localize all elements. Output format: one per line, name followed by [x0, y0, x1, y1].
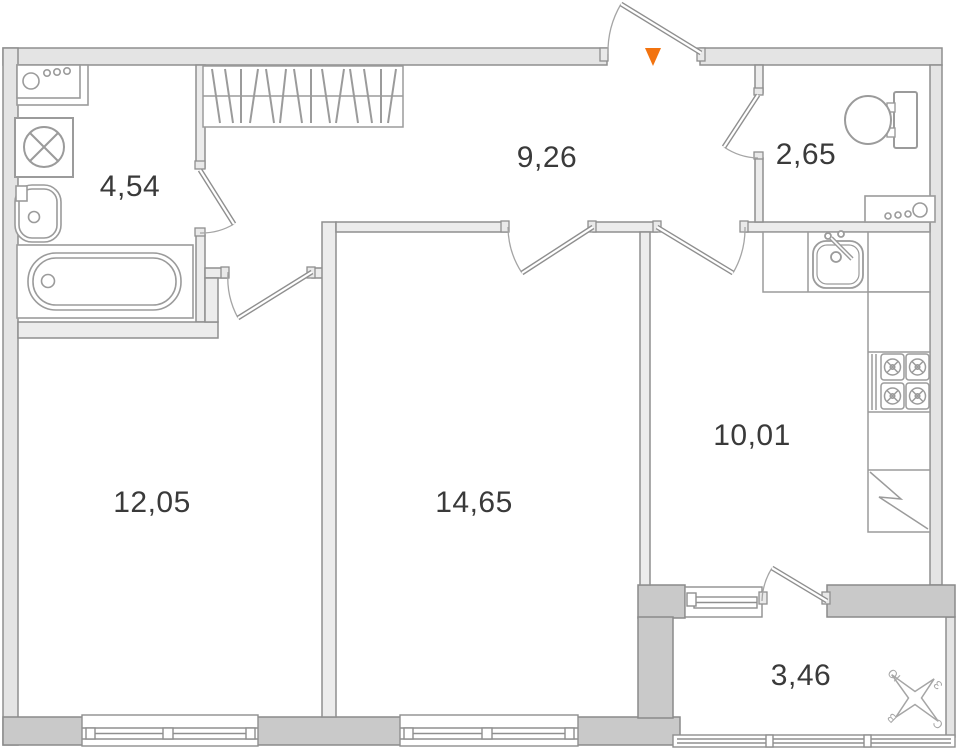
wardrobe-icon — [203, 66, 403, 127]
wall-segment — [205, 278, 218, 322]
door-jamb — [754, 88, 763, 95]
window-icon — [400, 715, 578, 746]
wall-segment — [593, 222, 657, 232]
wall-segment — [322, 222, 336, 717]
door-jamb — [195, 228, 205, 236]
wall-segment — [700, 48, 942, 65]
wall-segment — [638, 617, 673, 718]
bathroom-door-icon — [200, 170, 234, 233]
wall-segment — [196, 235, 205, 322]
toilet-icon — [845, 92, 917, 148]
washer-counter-icon — [17, 65, 88, 105]
wall-segment — [336, 222, 508, 232]
room-area-label-toilet: 2,65 — [776, 138, 836, 172]
room-area-label-hallway: 9,26 — [517, 141, 577, 175]
window-icon — [685, 587, 762, 617]
balcony-door-icon — [762, 568, 827, 601]
floor-plan-drawing: Ю З В С — [0, 0, 958, 748]
door-jamb — [195, 161, 205, 169]
wall-segment — [745, 222, 930, 232]
entrance-arrow-icon — [645, 48, 661, 66]
bedroom-door-icon — [228, 272, 312, 318]
kitchen-door-icon — [657, 227, 745, 273]
compass-north-label: С — [930, 716, 946, 732]
entrance-door-icon — [608, 4, 701, 54]
room-area-label-kitchen: 10,01 — [713, 419, 791, 453]
wall-segment — [3, 48, 607, 65]
room-area-label-living-room: 14,65 — [435, 486, 513, 520]
wall-segment — [930, 65, 942, 585]
wall-segment — [946, 617, 955, 737]
room-area-label-bedroom: 12,05 — [113, 486, 191, 520]
door-jamb — [600, 48, 608, 61]
wall-segment — [827, 585, 955, 617]
living-room-door-icon — [508, 227, 593, 273]
wall-segment — [638, 585, 685, 618]
window-icon — [82, 715, 258, 746]
balcony-glazing — [673, 735, 955, 747]
wall-segment — [755, 158, 763, 222]
washing-machine-icon — [15, 118, 73, 177]
room-area-label-bathroom: 4,54 — [100, 170, 160, 204]
wall-segment — [640, 232, 650, 585]
wall-segment — [18, 322, 218, 338]
compass-rose-icon: Ю З В С — [884, 666, 946, 732]
door-jamb — [740, 221, 748, 232]
wash-basin-icon — [15, 185, 61, 242]
bathtub-icon — [17, 245, 193, 318]
room-area-label-balcony: 3,46 — [771, 659, 831, 693]
fixtures — [15, 65, 935, 532]
compass-east-label: В — [884, 710, 900, 726]
toilet-door-icon — [724, 95, 758, 158]
laundry-machine-icon — [865, 196, 935, 222]
floor-plan: Ю З В С 4,54 9,26 2,65 12,05 14,65 10,01… — [0, 0, 958, 748]
